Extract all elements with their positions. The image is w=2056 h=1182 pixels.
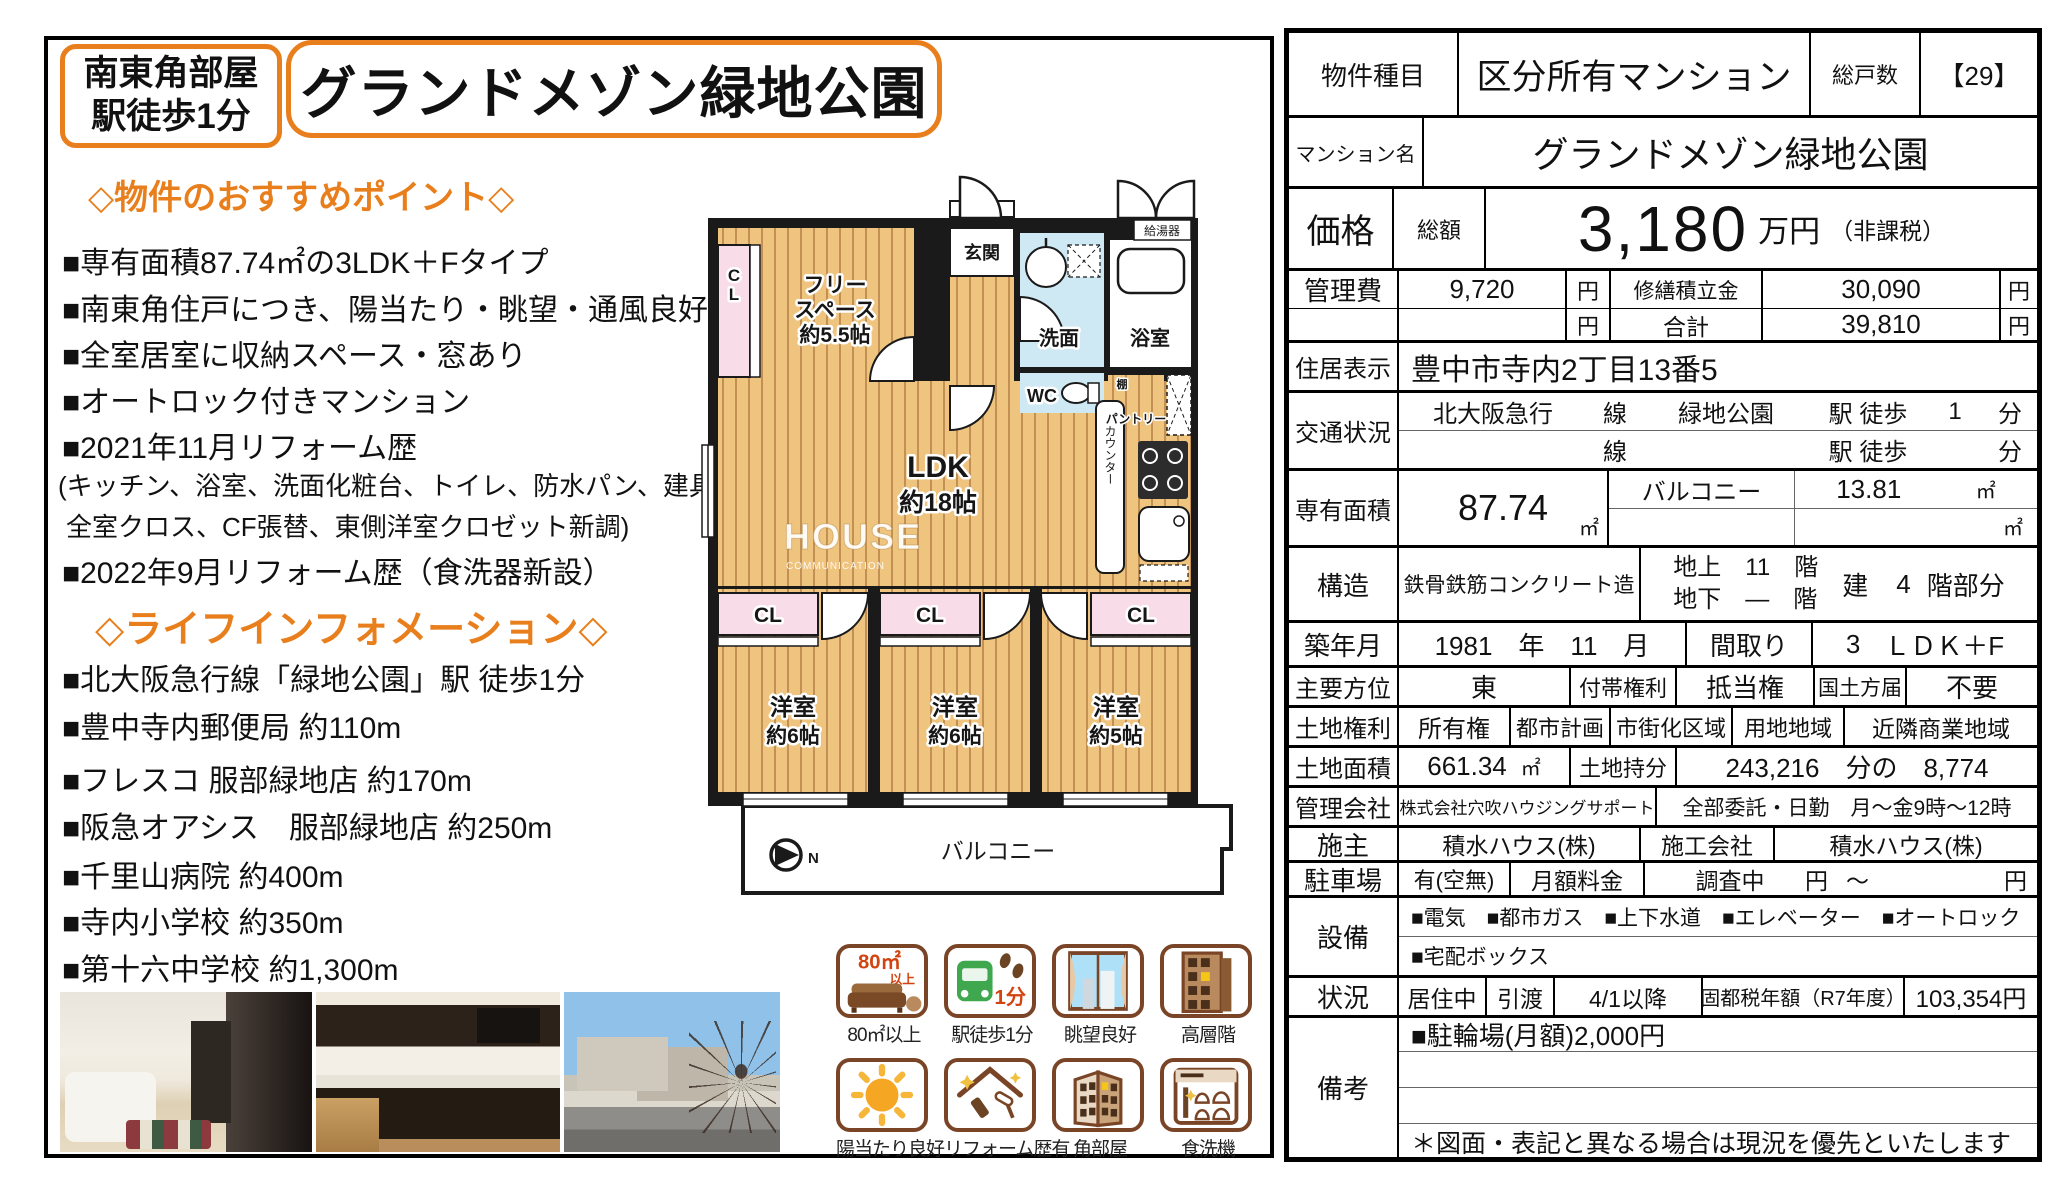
cell-label: 総戸数 [1811, 33, 1921, 115]
parking-yen: 円 [1805, 862, 1828, 896]
facilities-line1: ■電気 ■都市ガス ■上下水道 ■エレベーター ■オートロック [1399, 898, 2037, 937]
cell-label: 物件種目 [1289, 33, 1459, 115]
madori-number: 3 [1846, 629, 1860, 660]
cell-value: 積水ハウス(株) [1775, 828, 2037, 860]
remarks-lines: ■駐輪場(月額)2,000円 ＊図面・表記と異なる場合は現況を優先といたします [1399, 1018, 2037, 1157]
life-item: ■寺内小学校 約350m [62, 898, 344, 942]
point-item: ■2021年11月リフォーム歴 [62, 423, 417, 467]
row-structure: 構造 鉄骨鉄筋コンクリート造 地上 11 階 地下 ― 階 建 4 階部分 [1289, 548, 2037, 623]
land-area-value: 661.34 [1427, 751, 1507, 782]
label-shelf: 棚 [1117, 377, 1128, 391]
dish [1196, 1094, 1209, 1103]
station-name [1643, 431, 1809, 468]
cell-exclusive-area: 87.74 ㎡ [1399, 471, 1609, 545]
label-freespace: スペース [794, 299, 875, 322]
cell-value: 市街化区域 [1611, 708, 1733, 745]
cell-value: 豊中市寺内2丁目13番5 [1399, 343, 2037, 390]
cell-value: 9,720 [1399, 271, 1567, 308]
cell-label: 設備 [1289, 898, 1399, 975]
row-status: 状況 居住中 引渡 4/1以降 固都税年額（R7年度） 103,354円 [1289, 978, 2037, 1018]
feature-label: 駅徒歩1分 [944, 1020, 1040, 1047]
roller-handle [1008, 1105, 1013, 1118]
balcony-area: 13.81 [1836, 474, 1901, 505]
photo-kitchen-hood [477, 1008, 540, 1043]
balcony-line2: ㎡ [1609, 509, 2037, 546]
walk-min [1927, 431, 1983, 468]
label-freespace: フリー [804, 274, 867, 297]
area-unit: ㎡ [1579, 512, 1599, 541]
cell-label: 国土方届 [1815, 668, 1907, 705]
label-senmen: 洗面 [1039, 327, 1079, 350]
corner-building-icon [1056, 1062, 1140, 1128]
balcony-value: 13.81 ㎡ [1795, 471, 2037, 508]
row-transport: 交通状況 北大阪急行 線 緑地公園 駅 徒歩 1 分 線 駅 徒歩 分 [1289, 393, 2037, 471]
cell-label [1289, 309, 1399, 340]
cell-label: 施主 [1289, 828, 1399, 860]
cell-value: 【29】 [1921, 33, 2037, 115]
cell-value: 居住中 [1399, 978, 1487, 1015]
hammer [970, 1096, 990, 1118]
feature-corner-room: 角部屋 [1052, 1058, 1148, 1161]
walk-unit: 分 [1983, 393, 2037, 430]
spec-table: 物件種目 区分所有マンション 総戸数 【29】 マンション名 グランドメゾン緑地… [1284, 28, 2042, 1162]
point-item: ■オートロック付きマンション [62, 377, 470, 421]
cell-label: 固都税年額（R7年度） [1703, 978, 1905, 1015]
svg-text:80㎡: 80㎡ [858, 949, 902, 973]
parking-status: 調査中 [1655, 862, 1805, 896]
sofa-80sqm-icon: 80㎡ 以上 [840, 948, 924, 1014]
building-side [1221, 958, 1231, 1011]
balcony-line1: バルコニー 13.81 ㎡ [1609, 471, 2037, 509]
building [1101, 971, 1115, 1009]
label-room2-size: 約6帖 [928, 724, 982, 748]
label-cl-side: CL [725, 266, 744, 304]
row-builder: 施主 積水ハウス(株) 施工会社 積水ハウス(株) [1289, 828, 2037, 863]
sink [1139, 507, 1189, 561]
cell-label: 施工会社 [1641, 828, 1775, 860]
feature-label: 角部屋 [1052, 1134, 1148, 1161]
cell-label: 都市計画 [1511, 708, 1611, 745]
feature-high-floor: 高層階 [1160, 944, 1256, 1047]
feature-label: リフォーム歴有 [944, 1134, 1040, 1161]
label-room1-size: 約6帖 [766, 724, 820, 748]
row-address: 住居表示 豊中市寺内2丁目13番5 [1289, 343, 2037, 393]
remarks-line1: ■駐輪場(月額)2,000円 [1399, 1018, 2037, 1052]
sparkle [1010, 1072, 1021, 1083]
transport-line1: 北大阪急行 線 緑地公園 駅 徒歩 1 分 [1399, 393, 2037, 431]
remarks-line3 [1399, 1088, 2037, 1124]
plan-closet3-shelf [1091, 637, 1191, 646]
double-door-arc [1118, 181, 1156, 218]
window-view-icon [1056, 948, 1140, 1014]
cell-label: 築年月 [1289, 623, 1399, 665]
hatch-box [1140, 565, 1188, 581]
label-cl2: CL [916, 604, 944, 627]
sofa-seat [848, 992, 906, 1007]
sun-icon [840, 1062, 924, 1128]
cell-label: 総額 [1394, 189, 1486, 268]
cell-label: 駐車場 [1289, 863, 1399, 895]
photo-exterior-tree [689, 1021, 775, 1133]
row-kanrihi: 管理費 9,720 円 修繕積立金 30,090 円 [1289, 271, 2037, 309]
madori-type: ＬＤＫ＋F [1884, 626, 2004, 663]
facilities-lines: ■電気 ■都市ガス ■上下水道 ■エレベーター ■オートロック ■宅配ボックス [1399, 898, 2037, 975]
photo-exterior-buildings [577, 1037, 668, 1091]
cell-value: 全部委託・日勤 月～金9時～12時 [1657, 788, 2037, 825]
feature-label: 80㎡以上 [836, 1020, 932, 1047]
bathtub [1118, 249, 1184, 293]
cell-value: 661.34 ㎡ [1399, 748, 1571, 785]
cell-label: 管理会社 [1289, 788, 1399, 825]
train-icon: 1分 [948, 948, 1032, 1014]
cell-value: 1981 年 11 月 [1399, 623, 1687, 665]
cell-value: 103,354円 [1905, 978, 2037, 1015]
floors-above-below: 地上 11 階 地下 ― 階 [1673, 552, 1818, 617]
faucet [1174, 516, 1184, 526]
photo-living-doorway [191, 1021, 231, 1123]
dishwasher-icon [1164, 1062, 1248, 1128]
cell-value: 39,810 [1763, 309, 2001, 340]
life-item: ■第十六中学校 約1,300m [62, 945, 399, 989]
remarks-note: ＊図面・表記と異なる場合は現況を優先といたします [1399, 1124, 2037, 1159]
point-item: ■全室居室に収納スペース・窓あり [62, 331, 527, 375]
cell-label: 主要方位 [1289, 668, 1399, 705]
cell-label: 合計 [1611, 309, 1763, 340]
row-parking: 駐車場 有(空無) 月額料金 調査中 円 ～ 円 [1289, 863, 2037, 898]
cell-label: 土地権利 [1289, 708, 1399, 745]
sun-core [866, 1079, 899, 1112]
price-note: （非課税） [1830, 212, 1945, 246]
cell-value [1399, 309, 1567, 340]
feature-dishwasher: 食洗機 [1160, 1058, 1256, 1161]
remarks-text [1399, 1088, 2037, 1123]
cell-label: 専有面積 [1289, 471, 1399, 545]
label-pantry: パントリー [1106, 412, 1167, 426]
cell-label: 管理費 [1289, 271, 1399, 308]
photo-exterior [564, 992, 780, 1152]
train-window [962, 968, 987, 981]
cell-label: 間取り [1687, 623, 1813, 665]
point-item: ■専有面積87.74㎡の3LDK＋Fタイプ [62, 238, 549, 282]
plan-closet1-shelf [718, 637, 818, 646]
plan-closet-side-door [750, 245, 760, 377]
feature-label: 食洗機 [1160, 1134, 1256, 1161]
walk-label: 駅 徒歩 [1809, 431, 1927, 468]
walk-unit: 分 [1983, 431, 2037, 468]
walk-label: 駅 徒歩 [1809, 393, 1927, 430]
side-table [906, 996, 921, 1011]
cell-label: 構造 [1289, 548, 1399, 620]
life-item: ■北大阪急行線「緑地公園」駅 徒歩1分 [62, 655, 585, 699]
life-item: ■千里山病院 約400m [62, 852, 344, 896]
label-cl3: CL [1127, 604, 1155, 627]
row-built: 築年月 1981 年 11 月 間取り 3 ＬＤＫ＋F [1289, 623, 2037, 668]
remarks-text [1399, 1052, 2037, 1087]
row-price: 価格 総額 3,180 万円 （非課税） [1289, 189, 2037, 271]
photo-kitchen [316, 992, 560, 1152]
feature-view: 眺望良好 [1052, 944, 1148, 1047]
row-goukei: 円 合計 39,810 円 [1289, 309, 2037, 343]
feature-reform: リフォーム歴有 [944, 1058, 1040, 1161]
plan-closet-side [718, 245, 750, 377]
label-ldk-size: 約18帖 [899, 488, 977, 517]
transport-line2: 線 駅 徒歩 分 [1399, 431, 2037, 468]
point-item: ■南東角住戸につき、陽当たり・眺望・通風良好 [62, 285, 708, 329]
badge-line2: 駅徒歩1分 [91, 96, 250, 139]
cell-value: 東 [1399, 668, 1571, 705]
label-room2: 洋室 [932, 694, 978, 720]
walk-min: 1 [1927, 393, 1983, 430]
cell-label: 価格 [1289, 189, 1394, 268]
station-name: 緑地公園 [1643, 393, 1809, 430]
facilities-line2: ■宅配ボックス [1399, 937, 2037, 975]
area-value: 87.74 [1458, 487, 1548, 529]
cell-value: 近隣商業地域 [1845, 708, 2037, 745]
cell-label: 引渡 [1487, 978, 1555, 1015]
rack-post [1183, 1087, 1188, 1117]
feature-label: 高層階 [1160, 1020, 1256, 1047]
flyer-page: 南東角部屋 駅徒歩1分 グランドメゾン緑地公園 ◇物件のおすすめポイント◇ ■専… [0, 0, 2056, 1182]
facilities-text: ■宅配ボックス [1399, 937, 2037, 975]
balcony-unit: ㎡ [1976, 475, 1996, 504]
cell-unit: 円 [2001, 271, 2037, 308]
dish [1196, 1110, 1209, 1119]
point-item: (キッチン、浴室、洗面化粧台、トイレ、防水パン、建具新調 [58, 466, 767, 503]
cell-value: 鉄骨鉄筋コンクリート造 [1399, 548, 1641, 620]
cell-label: 交通状況 [1289, 393, 1399, 468]
line-name [1399, 431, 1587, 468]
cell-label: 月額料金 [1511, 863, 1645, 895]
line-suffix: 線 [1587, 431, 1643, 468]
row-direction: 主要方位 東 付帯権利 抵当権 国土方届 不要 [1289, 668, 2037, 708]
floor-number: 4 [1896, 569, 1910, 600]
cell-label: 備考 [1289, 1018, 1399, 1157]
floor-plan: CL フリー スペース 約5.5帖 玄関 洗面 浴室 給湯器 WC 棚 パントリ… [698, 145, 1238, 945]
floors-below: 地下 ― 階 [1673, 584, 1818, 616]
feature-station-1min: 1分 駅徒歩1分 [944, 944, 1040, 1047]
row-remarks: 備考 ■駐輪場(月額)2,000円 ＊図面・表記と異なる場合は現況を優先といたし… [1289, 1018, 2037, 1157]
life-item: ■フレスコ 服部緑地店 約170m [62, 756, 472, 800]
disclaimer-text: ＊図面・表記と異なる場合は現況を優先といたします [1399, 1124, 2037, 1159]
balcony-label: バルコニー [1609, 471, 1795, 508]
label-balcony: バルコニー [941, 838, 1056, 864]
label-freespace: 約5.5帖 [799, 323, 870, 347]
cell-unit: 円 [2001, 309, 2037, 340]
line-suffix: 線 [1587, 393, 1643, 430]
cell-value: 不要 [1907, 668, 2037, 705]
cell-value: 所有権 [1399, 708, 1511, 745]
sparkle [960, 1075, 975, 1090]
building [1083, 978, 1094, 1008]
paint-roller [994, 1091, 1013, 1106]
life-item: ■阪急オアシス 服部緑地店 約250m [62, 803, 552, 847]
point-item: ■2022年9月リフォーム歴（食洗器新設） [62, 548, 613, 592]
footprint [1011, 962, 1026, 980]
feature-label: 眺望良好 [1052, 1020, 1148, 1047]
label-room3: 洋室 [1093, 694, 1139, 720]
row-land-area: 土地面積 661.34 ㎡ 土地持分 243,216 分の 8,774 [1289, 748, 2037, 788]
label-wc: WC [1027, 386, 1057, 406]
label-ldk: LDK [907, 451, 969, 484]
label-room3-size: 約5帖 [1089, 724, 1143, 748]
remarks-text: ■駐輪場(月額)2,000円 [1399, 1018, 2037, 1051]
price-amount: 3,180 [1578, 192, 1748, 266]
cell-price: 3,180 万円 （非課税） [1486, 189, 2037, 268]
transport-lines: 北大阪急行 線 緑地公園 駅 徒歩 1 分 線 駅 徒歩 分 [1399, 393, 2037, 468]
badge-line1: 南東角部屋 [83, 53, 258, 96]
watermark-communication: COMMUNICATION [786, 561, 885, 572]
label-boiler: 給湯器 [1144, 224, 1180, 238]
cell-value: 有(空無) [1399, 863, 1511, 895]
row-area: 専有面積 87.74 ㎡ バルコニー 13.81 ㎡ ㎡ [1289, 471, 2037, 548]
svg-text:1分: 1分 [995, 986, 1027, 1009]
entry-door-arc [960, 177, 1001, 218]
cell-label: 土地持分 [1571, 748, 1677, 785]
built-label: 建 [1842, 566, 1868, 603]
cell-value: 4/1以降 [1555, 978, 1703, 1015]
cell-unit: 円 [1567, 271, 1611, 308]
cell-madori: 3 ＬＤＫ＋F [1813, 623, 2037, 665]
building-face-right [1098, 1072, 1121, 1125]
cell-label: 付帯権利 [1571, 668, 1677, 705]
parking-tilde: ～ [1846, 862, 1869, 896]
dishwasher-slot [1181, 1073, 1204, 1077]
balcony-block: バルコニー 13.81 ㎡ ㎡ [1609, 471, 2037, 545]
row-property-type: 物件種目 区分所有マンション 総戸数 【29】 [1289, 33, 2037, 118]
facilities-text: ■電気 ■都市ガス ■上下水道 ■エレベーター ■オートロック [1399, 898, 2037, 936]
land-area-unit: ㎡ [1521, 752, 1541, 781]
property-title: グランドメゾン緑地公園 [286, 40, 942, 138]
photo-living-rug [126, 1120, 212, 1149]
remarks-line2 [1399, 1052, 2037, 1088]
line-name: 北大阪急行 [1399, 393, 1587, 430]
washbasin [1026, 247, 1066, 287]
cell-value: 30,090 [1763, 271, 2001, 308]
cell-value: 243,216 分の 8,774 [1677, 748, 2037, 785]
toilet [1062, 383, 1090, 403]
watermark-house: HOUSE [784, 516, 922, 557]
label-genkan: 玄関 [964, 242, 1000, 263]
price-unit: 万円 [1758, 206, 1820, 251]
cell-label: 状況 [1289, 978, 1399, 1015]
point-item: 全室クロス、CF張替、東側洋室クロゼット新調) [66, 507, 629, 544]
sofa-leg [852, 1008, 857, 1013]
cell-label: 修繕積立金 [1611, 271, 1763, 308]
label-bath: 浴室 [1130, 326, 1170, 350]
feature-sunny: 陽当たり良好 [836, 1058, 932, 1161]
empty-cell [1609, 509, 1795, 546]
reform-icon [948, 1062, 1032, 1128]
floor-part: 階部分 [1927, 566, 2005, 603]
toilet-tank [1088, 383, 1099, 403]
row-management: 管理会社 株式会社穴吹ハウジングサポート 全部委託・日勤 月～金9時～12時 [1289, 788, 2037, 828]
cell-value: 区分所有マンション [1459, 33, 1811, 115]
row-mansion-name: マンション名 グランドメゾン緑地公園 [1289, 118, 2037, 189]
sofa-leg [897, 1008, 902, 1013]
photo-living-room [60, 992, 312, 1152]
footprint [998, 952, 1013, 970]
label-cl1: CL [754, 604, 782, 627]
cell-value: 株式会社穴吹ハウジングサポート [1399, 788, 1657, 825]
cell-value: グランドメゾン緑地公園 [1424, 118, 2037, 186]
train-light [981, 990, 989, 998]
parking-yen2: 円 [2004, 862, 2027, 896]
feature-label: 陽当たり良好 [836, 1134, 932, 1161]
cell-value: 積水ハウス(株) [1399, 828, 1641, 860]
floors-cell: 地上 11 階 地下 ― 階 建 4 階部分 [1641, 548, 2037, 620]
photo-living-dark-wall [226, 992, 312, 1152]
cell-label: マンション名 [1289, 118, 1424, 186]
row-land-rights: 土地権利 所有権 都市計画 市街化区域 用地地域 近隣商業地域 [1289, 708, 2037, 748]
label-counter: カウンター [1103, 425, 1117, 485]
feature-80sqm: 80㎡ 以上 80㎡以上 [836, 944, 932, 1047]
parking-fee-cell: 調査中 円 ～ 円 [1645, 863, 2037, 895]
dish [1214, 1092, 1229, 1102]
cell-value: 抵当権 [1677, 668, 1815, 705]
label-room1: 洋室 [770, 694, 816, 720]
label-north: N [808, 850, 819, 867]
points-heading: ◇物件のおすすめポイント◇ [88, 170, 514, 219]
cell-label: 土地面積 [1289, 748, 1399, 785]
high-rise-icon [1164, 948, 1248, 1014]
dish [1214, 1109, 1229, 1119]
double-door-arc [1156, 181, 1194, 218]
row-facilities: 設備 ■電気 ■都市ガス ■上下水道 ■エレベーター ■オートロック ■宅配ボッ… [1289, 898, 2037, 978]
cell-label: 用地地域 [1733, 708, 1845, 745]
cell-label: 住居表示 [1289, 343, 1399, 390]
life-heading: ◇ライフインフォメーション◇ [95, 598, 608, 653]
cell-unit: 円 [1567, 309, 1611, 340]
corner-badge: 南東角部屋 駅徒歩1分 [60, 44, 282, 148]
floors-above: 地上 11 階 [1673, 552, 1818, 584]
photo-kitchen-floor [316, 1098, 379, 1152]
life-item: ■豊中寺内郵便局 約110m [62, 703, 401, 747]
plan-closet2-shelf [880, 637, 980, 646]
unit-only: ㎡ [1795, 509, 2037, 546]
train-light [961, 990, 969, 998]
